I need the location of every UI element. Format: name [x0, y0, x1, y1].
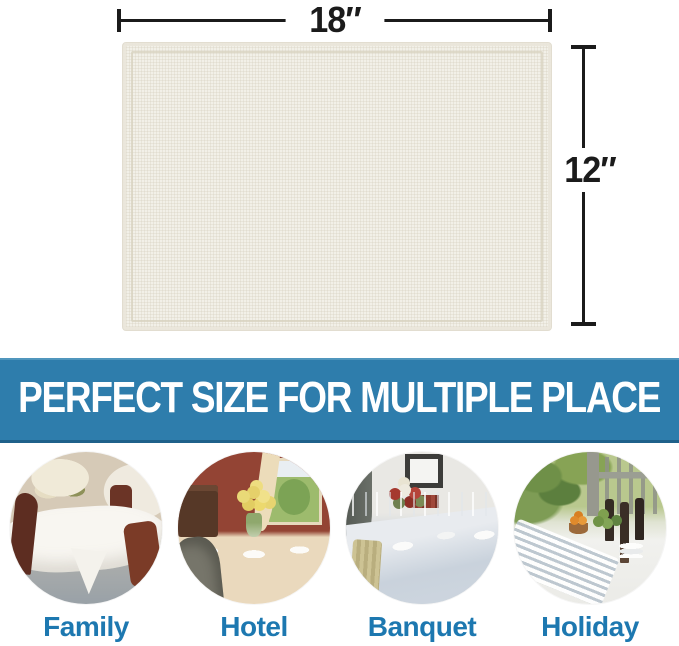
use-case-item-banquet: Banquet	[346, 452, 498, 643]
holiday-plate-stack	[611, 543, 651, 558]
use-case-label-banquet: Banquet	[368, 611, 477, 643]
holiday-wine-bottles	[605, 499, 614, 541]
family-photo	[10, 452, 162, 604]
hotel-sideboard	[178, 485, 218, 537]
section-banner: PERFECT SIZE FOR MULTIPLE PLACE	[0, 358, 679, 443]
height-dimension-label: 12″	[555, 148, 625, 192]
use-case-label-family: Family	[43, 611, 129, 643]
holiday-fruit-bowl	[569, 523, 589, 534]
width-dimension-endcap-right	[548, 9, 552, 32]
use-case-item-holiday: Holiday	[514, 452, 666, 643]
banquet-photo	[346, 452, 498, 604]
height-dimension-endcap-top	[571, 45, 596, 49]
height-dimension-endcap-bottom	[571, 322, 596, 326]
width-dimension-label: 18″	[286, 0, 385, 40]
width-dimension-endcap-left	[117, 9, 121, 32]
use-case-item-family: Family	[10, 452, 162, 643]
holiday-greenery	[593, 516, 604, 527]
use-case-item-hotel: Hotel	[178, 452, 330, 643]
use-case-label-hotel: Hotel	[220, 611, 288, 643]
banquet-picture-frame	[405, 454, 443, 489]
holiday-photo	[514, 452, 666, 604]
placemat-size-diagram: 18″ 12″	[0, 0, 679, 358]
hotel-vase	[246, 513, 261, 537]
holiday-porch-railing	[593, 457, 666, 515]
placemat-image	[122, 42, 552, 331]
use-case-label-holiday: Holiday	[541, 611, 639, 643]
hotel-photo	[178, 452, 330, 604]
banner-title: PERFECT SIZE FOR MULTIPLE PLACE	[19, 373, 661, 427]
family-right-chair	[123, 520, 162, 588]
hotel-rose-bouquet	[237, 490, 250, 503]
holiday-porch-post	[587, 452, 599, 516]
banquet-chair	[348, 539, 381, 604]
banquet-glassware	[352, 492, 492, 516]
placemat-product-infographic: 18″ 12″ PERFECT SIZE FOR MULTIPLE PLACE …	[0, 0, 679, 646]
use-case-list: Family Hotel	[10, 452, 674, 643]
holiday-striped-runner	[514, 518, 620, 604]
